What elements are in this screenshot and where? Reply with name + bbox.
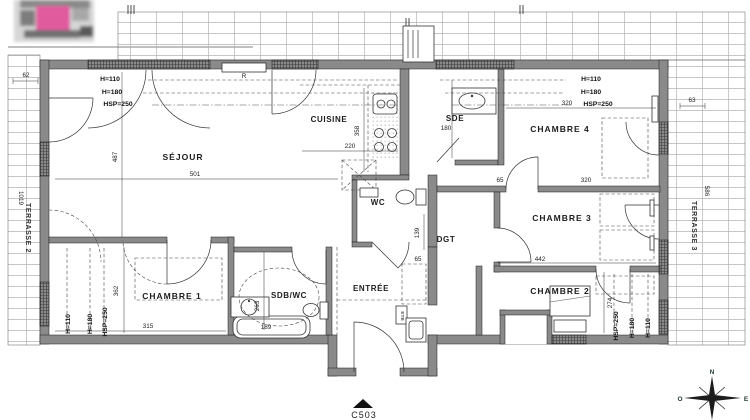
dim-cuisine-height: 358 [354,125,361,136]
wc-toilet [396,189,426,205]
svg-text:HSP=250: HSP=250 [103,101,133,108]
unit-label: C503 [351,410,377,420]
room-label-chambre2: CHAMBRE 2 [530,286,590,296]
svg-text:R: R [242,73,247,80]
chambre2-sill [554,320,586,332]
svg-text:H=180: H=180 [102,89,122,96]
room-label-sdbwc: SDB/WC [271,291,307,300]
dim-chambre2-height: 274 [607,297,614,308]
room-label-sejour: SÉJOUR [163,152,204,162]
dim-chambre3-width: 320 [581,177,592,184]
svg-text:H=110: H=110 [100,76,120,83]
dim-sdb-tub: 189 [261,324,272,331]
svg-text:HSP=250: HSP=250 [583,101,613,108]
room-label-chambre3: CHAMBRE 3 [532,213,592,223]
svg-text:H=110: H=110 [581,76,601,83]
sdb-washbasin [231,297,269,317]
room-label-dgt: DGT [437,235,456,244]
terrace-right [668,60,745,345]
compass-e: E [744,396,749,403]
compass-n: N [710,369,715,376]
svg-text:65: 65 [414,256,422,263]
svg-text:H=110: H=110 [645,318,652,338]
terrace2-label: TERRASSE 2 [24,203,31,253]
svg-text:H=110: H=110 [65,314,72,334]
svg-text:H=180: H=180 [87,314,94,334]
bathtub [233,316,310,338]
floor-plan-page: TERRASSE 2 1019 62 TERRASSE 3 586 63 [0,0,750,420]
room-label-cuisine: CUISINE [311,115,348,124]
wc-shelf [360,188,378,197]
svg-text:HSP=250: HSP=250 [102,307,109,337]
compass-o: O [677,396,682,403]
svg-text:ETB: ETB [399,311,405,320]
entree-cabinet [406,318,426,342]
svg-text:HSP=250: HSP=250 [613,311,620,341]
terrace2-width: 62 [22,72,30,79]
floor-plan: TERRASSE 2 1019 62 TERRASSE 3 586 63 [0,0,750,420]
svg-text:H=180: H=180 [629,318,636,338]
dim-sejour-height: 487 [112,151,119,162]
dim-chambre1-height: 362 [113,285,120,296]
svg-text:H=180: H=180 [581,89,601,96]
dim-chambre3-bottom: 442 [535,256,546,263]
room-label-sde: SDE [446,114,464,123]
room-label-chambre4: CHAMBRE 4 [530,124,590,134]
room-label-wc: WC [371,198,386,207]
dim-dgt-height: 139 [414,227,421,238]
terrace3-width: 63 [688,97,696,104]
dim-chambre1-width: 315 [143,323,154,330]
dim-sdb-height: 263 [254,300,261,311]
dim-cuisine-width: 220 [345,143,356,150]
dim-sejour-width: 501 [190,171,201,178]
dim-sde: 180 [441,125,452,132]
sde-washbasin [452,88,496,114]
room-label-entree: ENTRÉE [353,284,389,293]
terrace2-length: 1019 [17,191,24,206]
terrace3-length: 586 [703,186,710,197]
logo [14,0,94,42]
electrical-panel: ETB [396,306,407,324]
dim-chambre3-offset: 65 [496,177,504,184]
dim-chambre4-width: 320 [562,100,573,107]
room-label-chambre1: CHAMBRE 1 [142,291,202,301]
radiator-chambre4 [652,96,658,122]
terrace3-label: TERRASSE 3 [690,201,697,251]
